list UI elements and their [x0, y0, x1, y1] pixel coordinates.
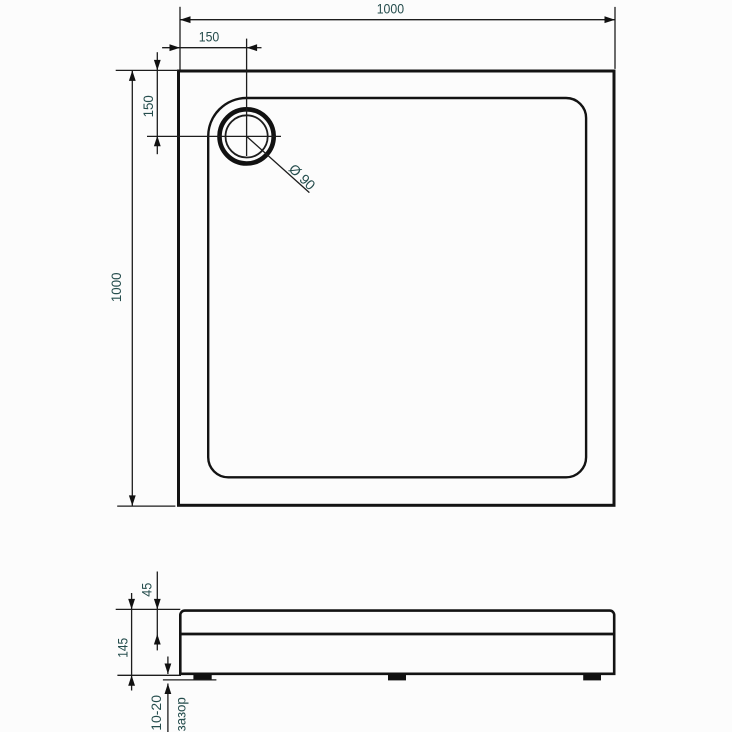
svg-text:1000: 1000 — [377, 1, 404, 17]
svg-text:150: 150 — [141, 95, 156, 118]
svg-text:45: 45 — [139, 583, 155, 597]
svg-text:10-20: 10-20 — [148, 695, 164, 731]
svg-text:зазор: зазор — [173, 697, 188, 731]
svg-text:145: 145 — [115, 638, 131, 658]
svg-text:1000: 1000 — [109, 272, 124, 302]
svg-text:150: 150 — [199, 29, 220, 45]
